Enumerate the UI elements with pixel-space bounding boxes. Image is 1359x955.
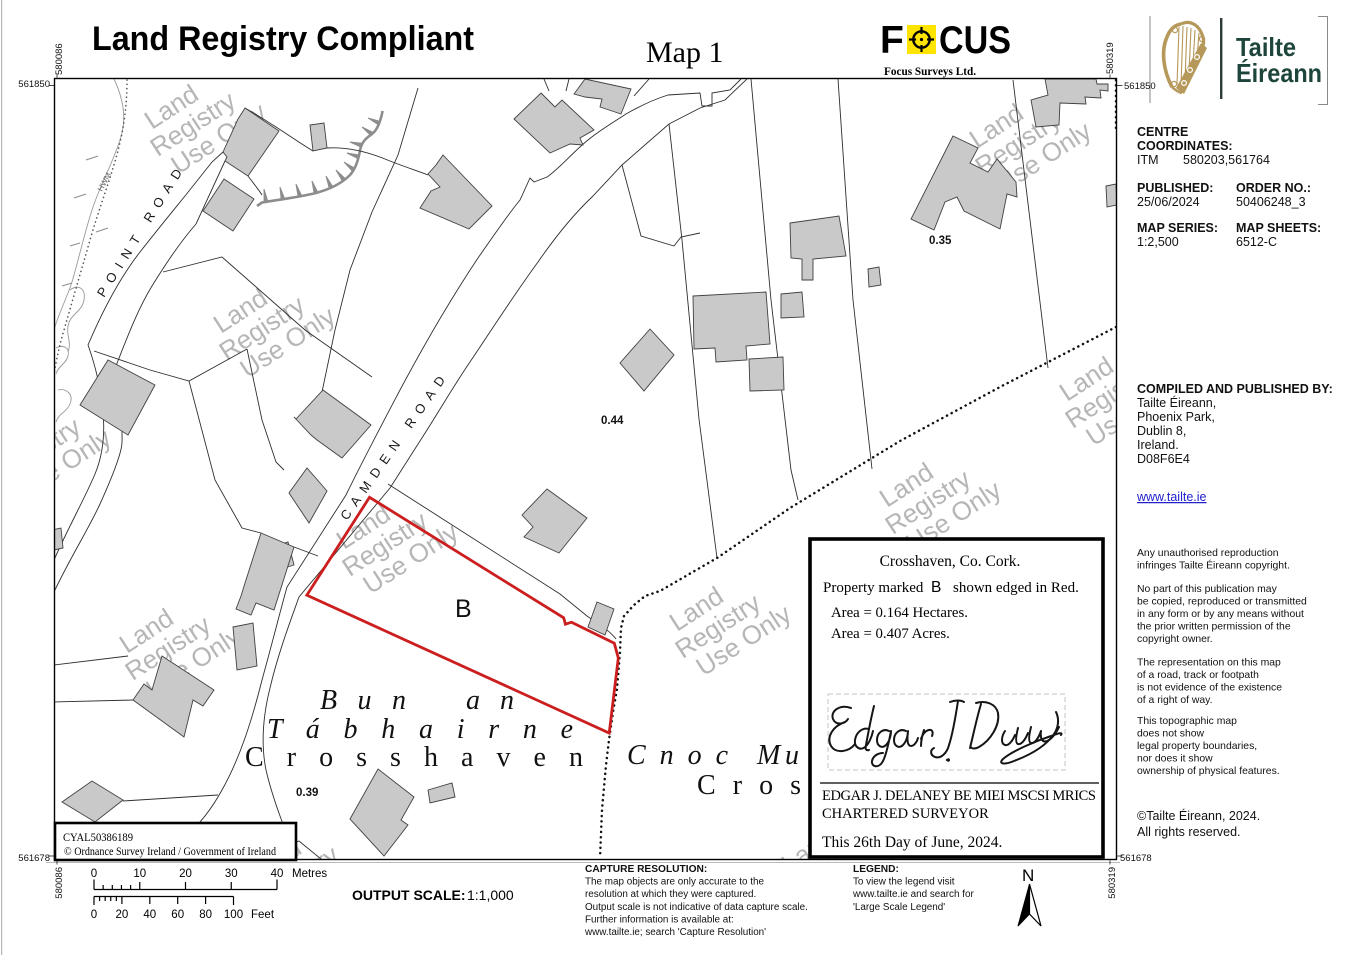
svg-text:www.tailte.ie: www.tailte.ie [1136,490,1207,504]
svg-text:of a right of way.: of a right of way. [1137,695,1212,706]
svg-text:shown edged in Red.: shown edged in Red. [953,580,1079,596]
svg-text:www.tailte.ie; search 'Capture: www.tailte.ie; search 'Capture Resolutio… [584,927,766,938]
svg-text:Feet: Feet [251,909,275,921]
svg-text:MAP SHEETS:: MAP SHEETS: [1236,221,1321,235]
svg-text:F: F [880,19,904,62]
svg-text:561678: 561678 [18,853,50,864]
svg-text:EDGAR J. DELANEY BE MIEI MSC: EDGAR J. DELANEY BE MIEI MSCSI MRICS [822,788,1096,804]
svg-text:ORDER NO.:: ORDER NO.: [1236,181,1311,195]
svg-text:ownership of physical features: ownership of physical features. [1137,766,1280,777]
svg-text:10: 10 [133,868,146,880]
svg-text:CUS: CUS [939,19,1011,62]
svg-text:0: 0 [91,909,97,921]
svg-text:M u: M u [756,740,799,771]
svg-text:LEGEND:: LEGEND: [853,864,899,875]
svg-text:Any unauthorised reproduction: Any unauthorised reproduction [1137,548,1279,559]
svg-text:'Large Scale Legend': 'Large Scale Legend' [853,902,945,913]
svg-text:0.39: 0.39 [296,787,318,799]
svg-text:the prior written permission o: the prior written permission of the [1137,622,1291,633]
svg-text:N: N [1022,866,1034,885]
svg-text:Output scale is not indicative: Output scale is not indicative of data c… [585,902,808,913]
svg-text:30: 30 [225,868,238,880]
svg-text:6512-C: 6512-C [1236,235,1277,249]
svg-text:CHARTERED SURVEYOR: CHARTERED SURVEYOR [822,806,989,822]
svg-text:All rights reserved.: All rights reserved. [1137,825,1241,839]
svg-text:To view the legend visit: To view the legend visit [853,877,955,888]
svg-text:be copied, reproduced or trans: be copied, reproduced or transmitted [1137,597,1307,608]
svg-text:Éireann: Éireann [1236,58,1322,88]
svg-text:20: 20 [179,868,192,880]
svg-text:Further information is availab: Further information is available at: [585,914,734,925]
svg-text:nor does it show: nor does it show [1137,754,1213,765]
svg-text:of a road, track or footpath: of a road, track or footpath [1137,670,1259,681]
svg-text:580319: 580319 [1105,42,1116,74]
svg-text:T á b h a i r n e: T á b h a i r n e [267,714,573,745]
svg-text:No part of this publication ma: No part of this publication may [1137,584,1278,595]
svg-text:0.44: 0.44 [601,415,624,427]
svg-text:a n: a n [466,685,514,716]
svg-text:CENTRE: CENTRE [1137,125,1188,139]
svg-text:Area = 0.164 Hectares.: Area = 0.164 Hectares. [831,605,968,621]
svg-text:resolution at which they were: resolution at which they were captured. [585,889,756,900]
svg-text:561850: 561850 [1124,81,1156,92]
svg-text:40: 40 [143,909,156,921]
svg-text:CYAL50386189: CYAL50386189 [63,832,133,844]
svg-text:does not show: does not show [1137,729,1205,740]
svg-text:580086: 580086 [54,43,65,75]
svg-text:MAP SERIES:: MAP SERIES: [1137,221,1218,235]
svg-text:40: 40 [271,868,284,880]
svg-text:Crosshaven, Co. Cork.: Crosshaven, Co. Cork. [880,553,1021,570]
svg-text:CAPTURE RESOLUTION:: CAPTURE RESOLUTION: [585,864,707,875]
svg-text:60: 60 [171,909,184,921]
svg-text:ITM: ITM [1137,153,1159,167]
svg-text:1:1,000: 1:1,000 [467,887,514,903]
svg-text:580203,561764: 580203,561764 [1183,153,1270,167]
svg-text:0.35: 0.35 [929,235,952,247]
svg-text:561850: 561850 [18,79,50,90]
svg-text:Property marked: Property marked [823,580,924,596]
svg-text:The representation on this map: The representation on this map [1137,658,1281,669]
svg-text:© Ordnance Survey Ireland / Go: © Ordnance Survey Ireland / Government o… [64,846,276,858]
svg-text:580319: 580319 [1107,867,1118,899]
svg-text:50406248_3: 50406248_3 [1236,195,1306,209]
svg-text:in any form or by any means wi: in any form or by any means without [1137,609,1304,620]
svg-text:OUTPUT SCALE:: OUTPUT SCALE: [352,887,466,903]
svg-text:580086: 580086 [54,867,65,899]
svg-text:infringes Tailte Éireann copyr: infringes Tailte Éireann copyright. [1137,559,1290,572]
svg-text:Metres: Metres [292,868,327,880]
svg-text:www.tailte.ie and search for: www.tailte.ie and search for [852,889,974,900]
svg-text:This 26th Day of June, 2024.: This 26th Day of June, 2024. [822,834,1002,851]
svg-text:561678: 561678 [1120,853,1152,864]
svg-text:1:2,500: 1:2,500 [1137,235,1179,249]
svg-text:Phoenix Park,: Phoenix Park, [1137,410,1215,424]
svg-text:COMPILED AND PUBLISHED BY:: COMPILED AND PUBLISHED BY: [1137,382,1333,396]
svg-text:Area = 0.407 Acres.: Area = 0.407 Acres. [831,626,950,642]
svg-text:Tailte Éireann,: Tailte Éireann, [1137,395,1216,410]
svg-text:B: B [931,579,941,596]
svg-text:Land Registry Compliant: Land Registry Compliant [92,20,474,58]
svg-text:COORDINATES:: COORDINATES: [1137,139,1233,153]
svg-text:25/06/2024: 25/06/2024 [1137,195,1200,209]
svg-text:0: 0 [91,868,97,880]
svg-text:B: B [455,595,472,623]
svg-text:D08F6E4: D08F6E4 [1137,452,1190,466]
svg-text:Map 1: Map 1 [646,36,724,69]
svg-text:The map objects are only accur: The map objects are only accurate to the [585,877,764,888]
svg-text:This topographic map: This topographic map [1137,716,1237,727]
svg-text:Focus Surveys Ltd.: Focus Surveys Ltd. [884,64,976,78]
svg-text:©Tailte Éireann, 2024.: ©Tailte Éireann, 2024. [1137,808,1260,823]
svg-text:20: 20 [116,909,129,921]
svg-text:80: 80 [199,909,212,921]
svg-text:100: 100 [224,909,243,921]
svg-text:is not evidence of the existen: is not evidence of the existence [1137,683,1282,694]
svg-text:legal property boundaries,: legal property boundaries, [1137,741,1257,752]
svg-text:Dublin 8,: Dublin 8, [1137,424,1186,438]
svg-text:PUBLISHED:: PUBLISHED: [1137,181,1213,195]
svg-text:Ireland.: Ireland. [1137,438,1179,452]
svg-text:B u n: B u n [320,685,406,716]
svg-text:copyright owner.: copyright owner. [1137,634,1213,645]
